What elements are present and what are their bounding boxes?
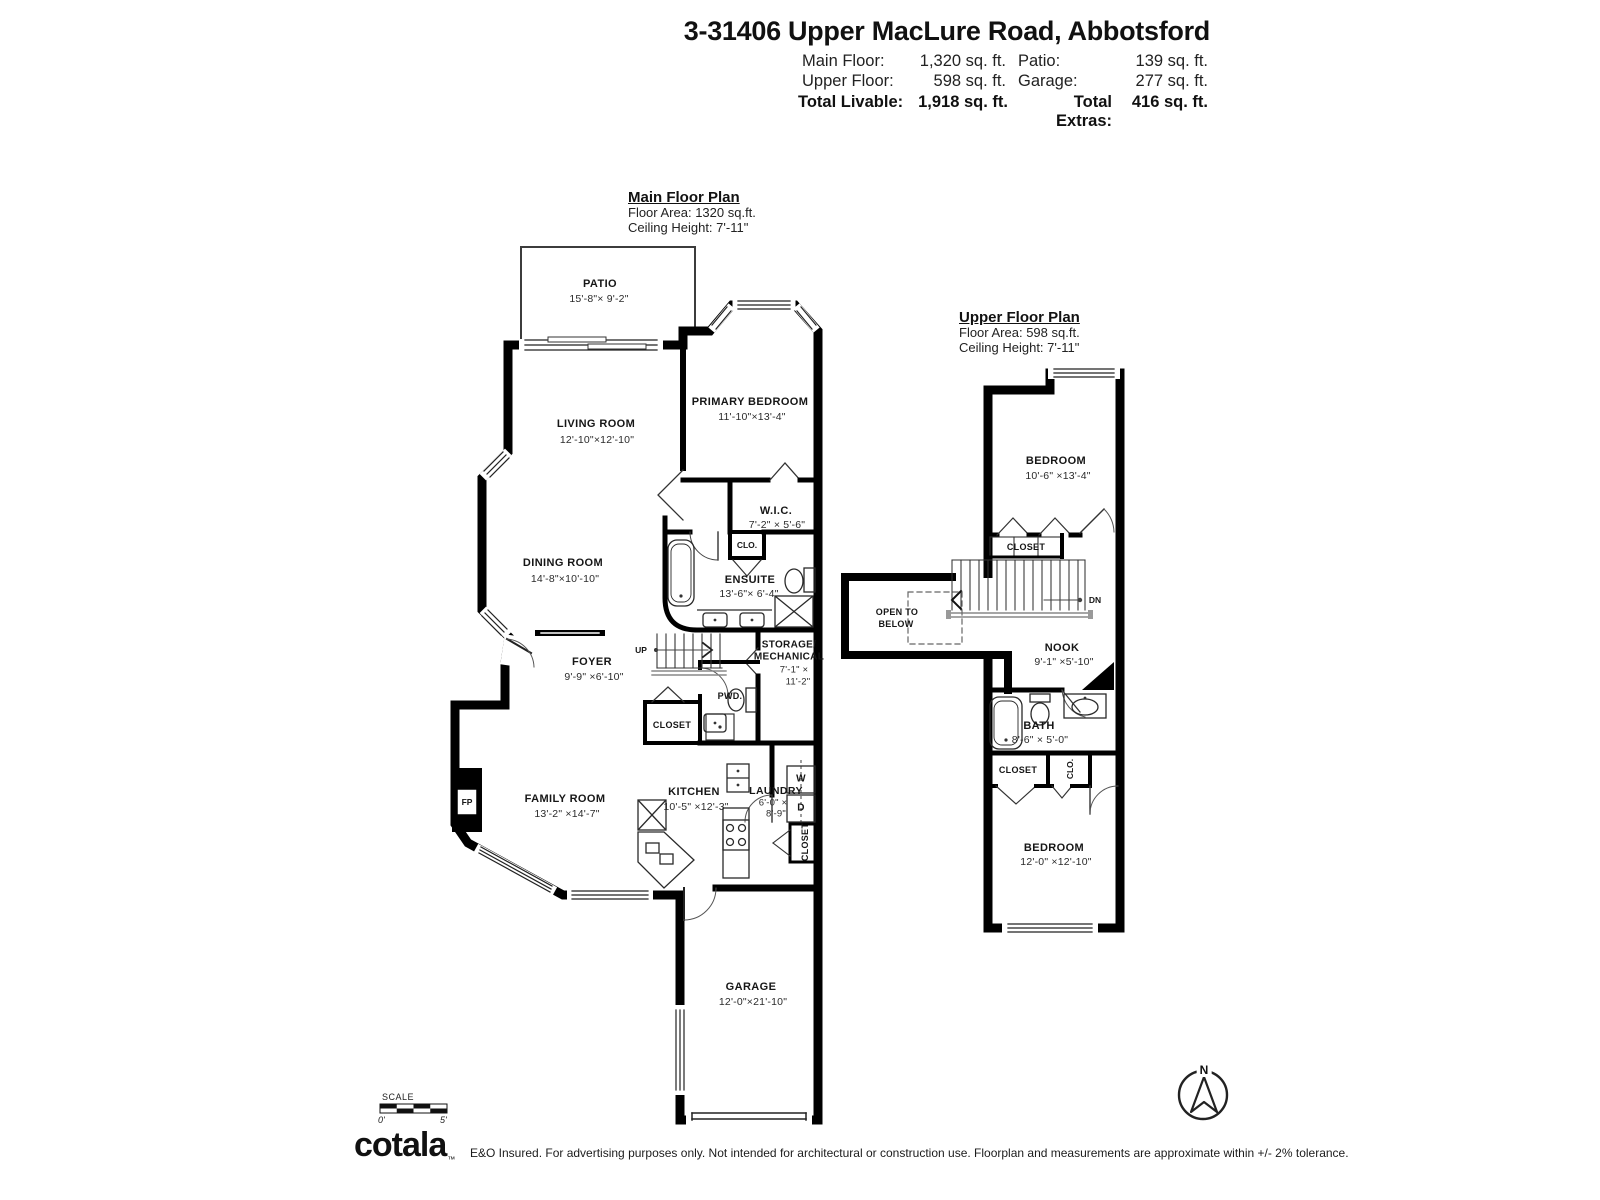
upper-floor-area: Floor Area: 598 sq.ft.: [959, 325, 1080, 340]
open-to-below-label-2: BELOW: [879, 619, 914, 629]
room-dims-patio: 15'-8"× 9'-2": [569, 293, 628, 305]
room-dims-storage-2: 11'-2": [786, 677, 811, 688]
room-label-foyer: FOYER: [572, 656, 612, 668]
scale-label: SCALE: [382, 1092, 414, 1102]
room-dims-primary-bedroom: 11'-10"×13'-4": [718, 411, 786, 423]
main-floor-plan-title: Main Floor Plan: [628, 190, 756, 205]
room-label-upper-closet: CLOSET: [1007, 542, 1045, 552]
open-to-below-label-1: OPEN TO: [876, 607, 918, 617]
room-label-garage: GARAGE: [726, 981, 777, 993]
area-stats: Main Floor: 1,320 sq. ft. Patio: 139 sq.…: [802, 52, 1208, 91]
scale-start-label: 0': [378, 1115, 385, 1125]
area-totals: Total Livable: 1,918 sq. ft. Total Extra…: [798, 93, 1208, 131]
north-label: N: [1197, 1063, 1212, 1077]
room-label-bath: BATH: [1023, 720, 1054, 732]
room-dims-garage: 12'-0"×21'-10": [719, 996, 787, 1008]
room-label-living-room: LIVING ROOM: [557, 418, 635, 430]
room-dims-foyer: 9'-9" ×6'-10": [564, 671, 623, 683]
room-label-bedroom-2: BEDROOM: [1024, 842, 1084, 854]
main-floor-area: Floor Area: 1320 sq.ft.: [628, 205, 756, 220]
room-dims-family-room: 13'-2" ×14'-7": [534, 808, 599, 820]
room-dims-bedroom-2: 12'-0" ×12'-10": [1020, 856, 1091, 868]
stat-value: 598 sq. ft.: [906, 72, 1006, 91]
stat-value: 139 sq. ft.: [1108, 52, 1208, 71]
main-floor-plan-title-block: Main Floor Plan Floor Area: 1320 sq.ft. …: [628, 190, 756, 235]
room-dims-storage-1: 7'-1" ×: [780, 665, 809, 676]
north-arrow-icon: [1179, 1071, 1227, 1119]
room-label-laundry: LAUNDRY: [749, 785, 803, 797]
floorplan-drawing: [0, 0, 1600, 1200]
room-label-pwd: PWD.: [718, 691, 743, 701]
stat-label: Patio:: [1018, 52, 1096, 71]
washer-label: W: [796, 774, 806, 785]
floorplan-page: 3-31406 Upper MacLure Road, Abbotsford M…: [0, 0, 1600, 1200]
trademark-symbol: ™: [447, 1155, 454, 1164]
room-dims-laundry-2: 8'-9": [766, 809, 786, 820]
room-label-storage-1: STORAGE/: [762, 640, 816, 651]
dryer-label: D: [797, 803, 805, 814]
stat-label: Main Floor:: [802, 52, 894, 71]
main-floor-ceiling: Ceiling Height: 7'-11": [628, 220, 756, 235]
disclaimer-text: E&O Insured. For advertising purposes on…: [470, 1146, 1349, 1160]
room-label-upper-clo: CLO.: [1065, 759, 1075, 779]
room-label-wic: W.I.C.: [760, 505, 792, 517]
stat-value: 1,320 sq. ft.: [906, 52, 1006, 71]
upper-floor-plan-title: Upper Floor Plan: [959, 310, 1080, 325]
room-dims-living-room: 12'-10"×12'-10": [560, 434, 634, 446]
room-dims-kitchen: 10'-5" ×12'-3": [663, 801, 728, 813]
total-value: 1,918 sq. ft.: [912, 93, 1008, 131]
room-label-closet-2: CLOSET: [800, 823, 810, 861]
stat-label: Garage:: [1018, 72, 1096, 91]
room-label-dining-room: DINING ROOM: [523, 557, 603, 569]
total-label: Total Extras:: [1014, 93, 1112, 131]
room-label-nook: NOOK: [1045, 642, 1080, 654]
total-value: 416 sq. ft.: [1118, 93, 1208, 131]
upper-floor-plan-title-block: Upper Floor Plan Floor Area: 598 sq.ft. …: [959, 310, 1080, 355]
total-label: Total Livable:: [798, 93, 906, 131]
upper-floor-ceiling: Ceiling Height: 7'-11": [959, 340, 1080, 355]
room-dims-laundry-1: 6'-0" ×: [759, 798, 788, 809]
stairs-dn-label: DN: [1089, 595, 1101, 605]
room-label-primary-bedroom: PRIMARY BEDROOM: [692, 396, 809, 408]
stat-value: 277 sq. ft.: [1108, 72, 1208, 91]
room-label-bedroom-1: BEDROOM: [1026, 455, 1086, 467]
cotala-logo-text: cotala: [354, 1126, 446, 1164]
stairs-up-label: UP: [635, 645, 647, 655]
scale-end-label: 5': [440, 1115, 447, 1125]
room-label-patio: PATIO: [583, 278, 617, 290]
room-dims-bedroom-1: 10'-6" ×13'-4": [1025, 470, 1090, 482]
room-label-upper-closet-2: CLOSET: [999, 765, 1037, 775]
page-title: 3-31406 Upper MacLure Road, Abbotsford: [684, 16, 1210, 47]
stat-label: Upper Floor:: [802, 72, 894, 91]
room-label-family-room: FAMILY ROOM: [525, 793, 606, 805]
room-dims-dining-room: 14'-8"×10'-10": [531, 573, 599, 585]
room-label-kitchen: KITCHEN: [668, 786, 720, 798]
room-dims-wic: 7'-2" × 5'-6": [749, 519, 805, 531]
room-dims-bath: 8'-6" × 5'-0": [1012, 734, 1068, 746]
room-label-ensuite: ENSUITE: [725, 574, 775, 586]
cotala-logo: cotala™: [354, 1126, 453, 1165]
fireplace-label: FP: [462, 797, 473, 807]
room-dims-ensuite: 13'-6"× 6'-4": [719, 588, 778, 600]
room-dims-nook: 9'-1" ×5'-10": [1034, 656, 1093, 668]
room-label-closet: CLOSET: [653, 720, 691, 730]
room-label-clo: CLO.: [737, 540, 757, 550]
scale-bar-icon: [380, 1104, 447, 1113]
room-label-storage-2: MECHANICAL: [754, 652, 824, 663]
